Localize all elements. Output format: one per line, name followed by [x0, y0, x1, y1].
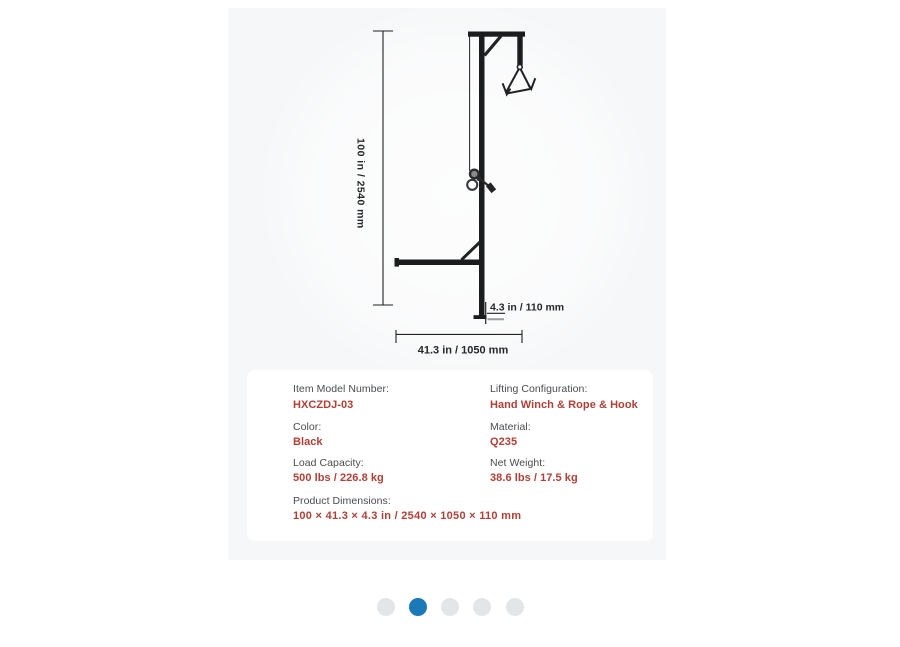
svg-text:4.3 in / 110 mm: 4.3 in / 110 mm [490, 301, 564, 313]
svg-text:100 in / 2540 mm: 100 in / 2540 mm [355, 138, 367, 229]
svg-text:41.3 in / 1050 mm: 41.3 in / 1050 mm [418, 345, 509, 357]
